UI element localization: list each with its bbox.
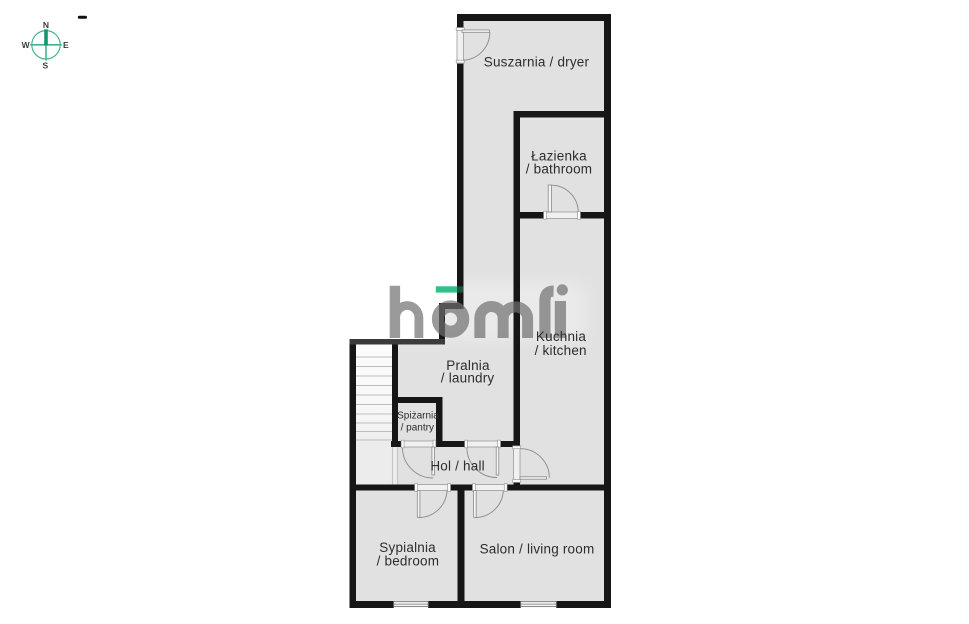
svg-text:/ kitchen: / kitchen bbox=[535, 343, 587, 358]
svg-text:/ bedroom: / bedroom bbox=[377, 553, 440, 568]
svg-text:Suszarnia / dryer: Suszarnia / dryer bbox=[484, 55, 590, 70]
svg-text:Hol / hall: Hol / hall bbox=[430, 459, 485, 474]
svg-text:/ laundry: / laundry bbox=[441, 371, 495, 386]
svg-text:E: E bbox=[63, 40, 69, 50]
svg-text:W: W bbox=[22, 40, 31, 50]
svg-text:/ bathroom: / bathroom bbox=[526, 162, 593, 177]
svg-text:Spiżarnia: Spiżarnia bbox=[397, 411, 439, 422]
svg-text:/ pantry: / pantry bbox=[401, 423, 434, 434]
svg-text:S: S bbox=[42, 61, 48, 71]
svg-text:N: N bbox=[43, 20, 49, 30]
svg-text:Salon / living room: Salon / living room bbox=[480, 541, 595, 556]
